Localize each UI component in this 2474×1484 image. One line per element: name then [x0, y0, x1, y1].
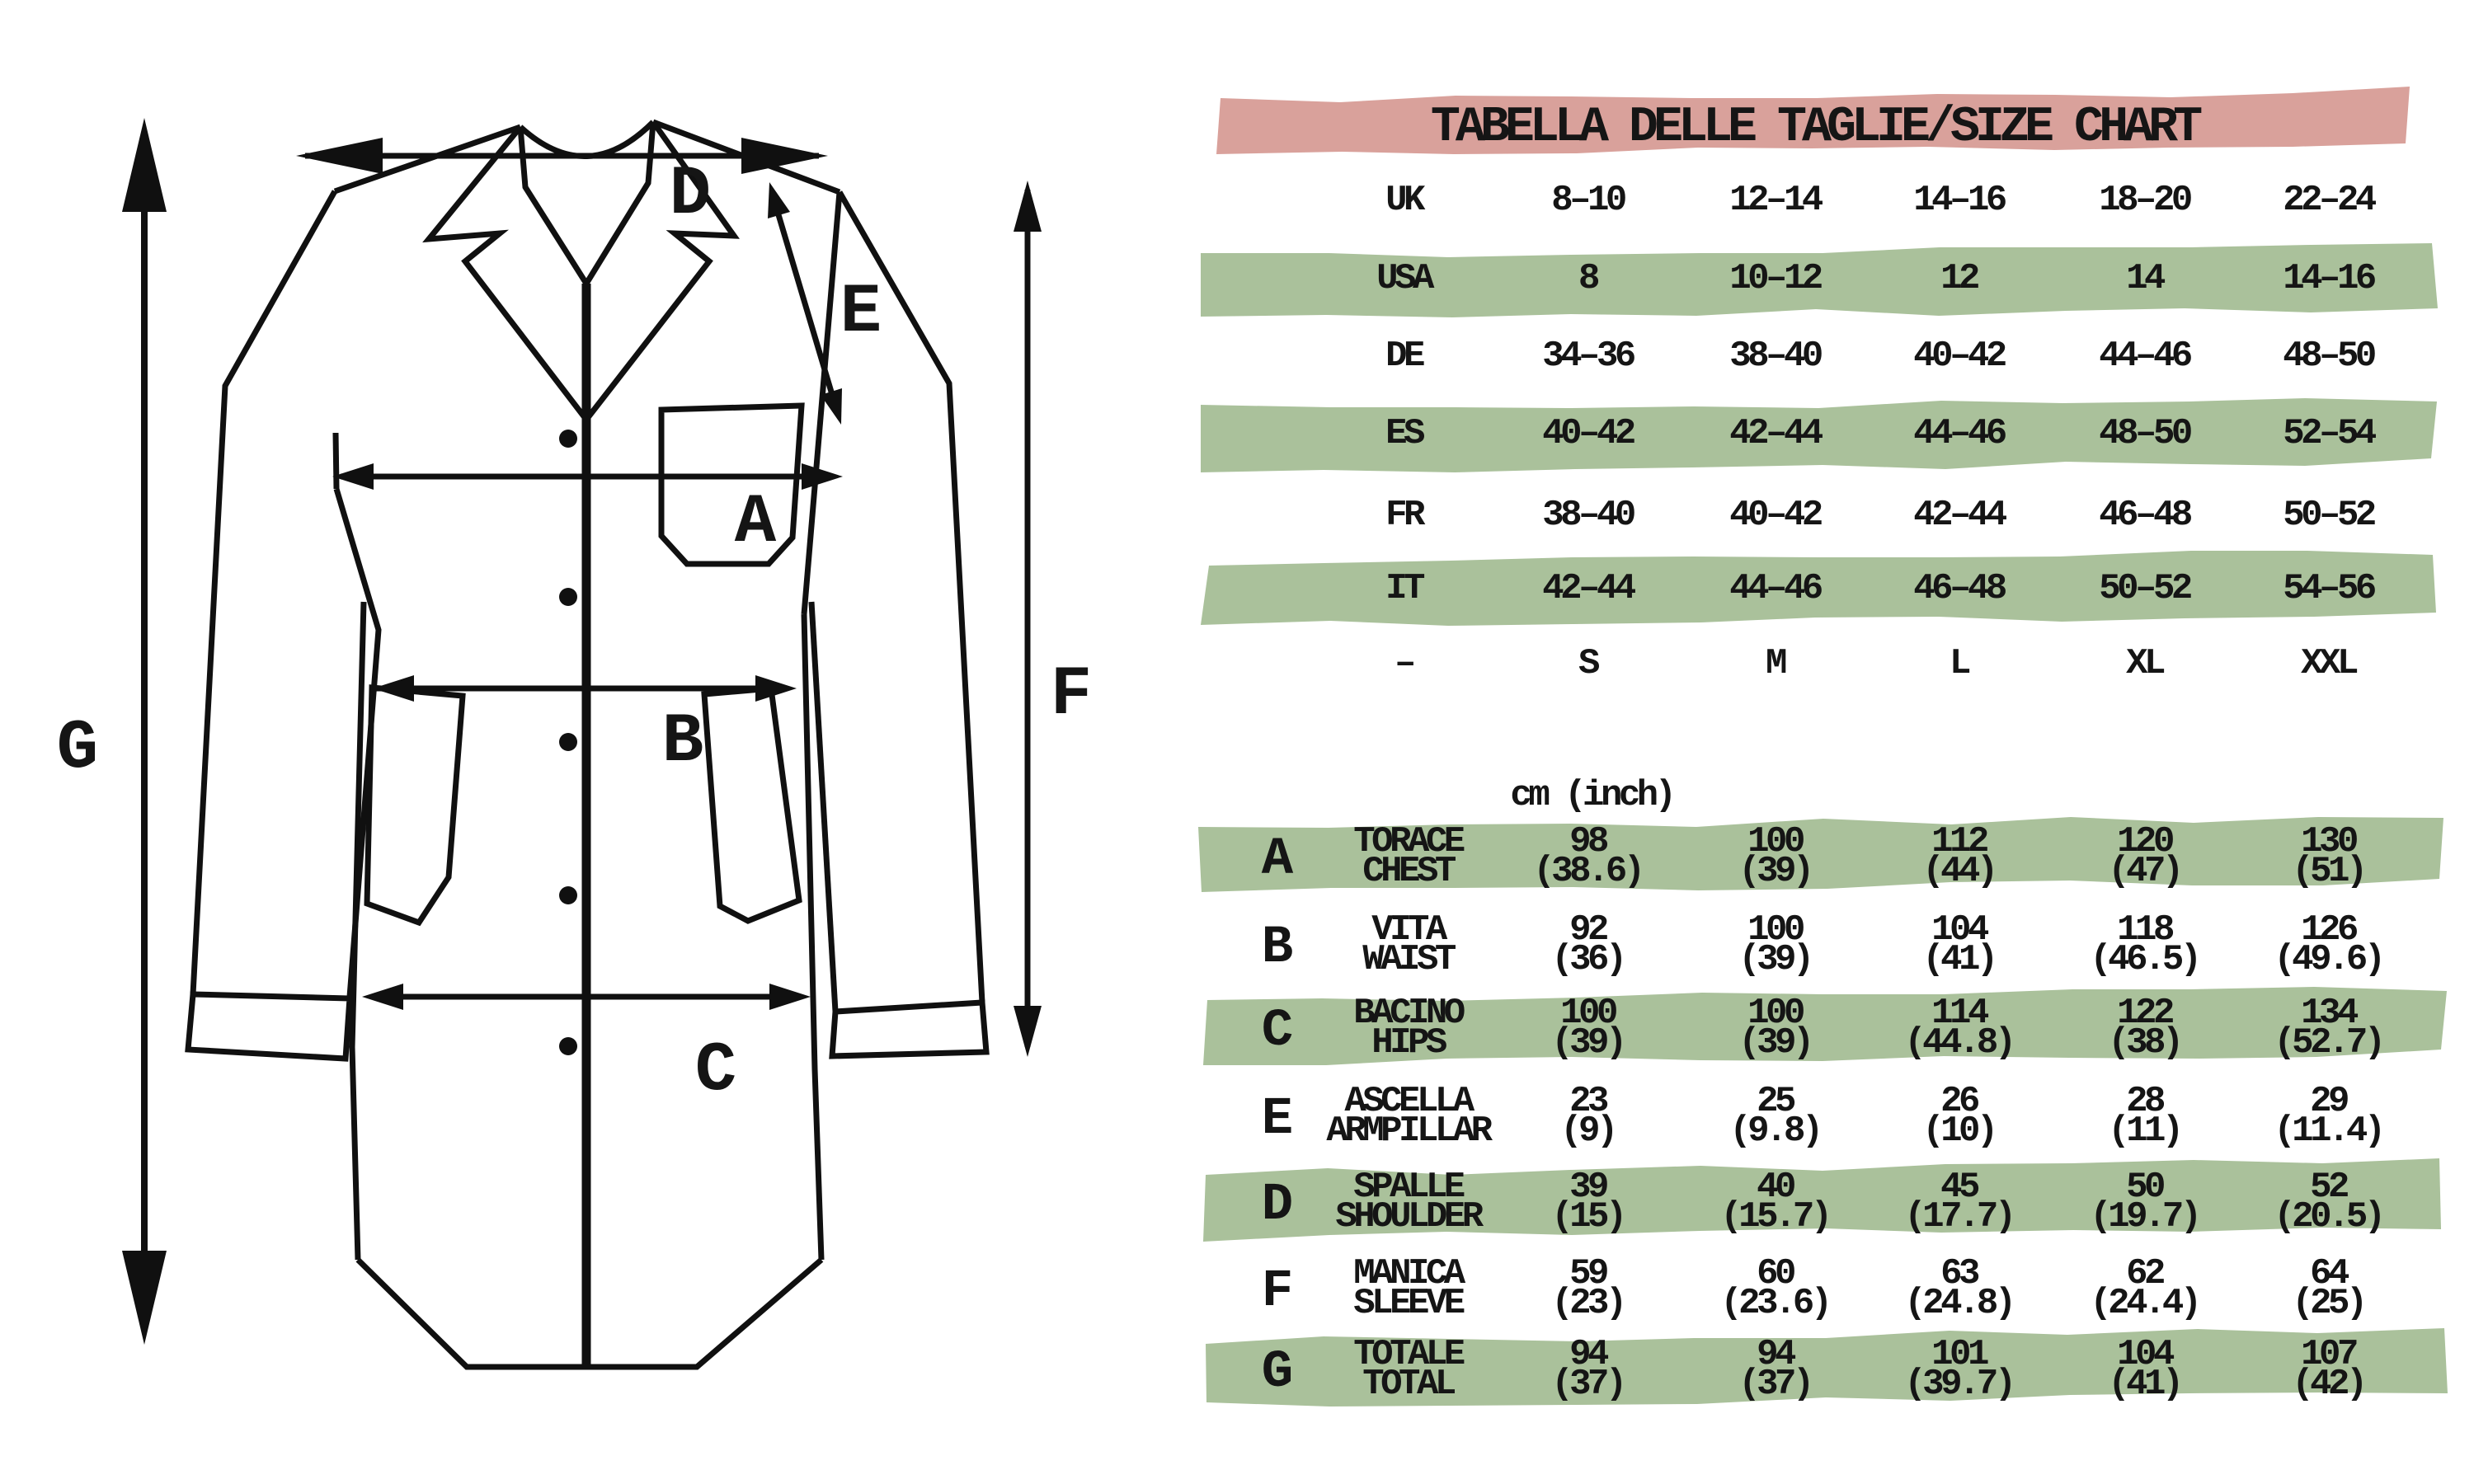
svg-text:ES: ES — [1385, 413, 1425, 454]
svg-text:(44.8): (44.8) — [1904, 1022, 2012, 1064]
svg-text:(49.6): (49.6) — [2274, 939, 2382, 980]
svg-text:34–36: 34–36 — [1542, 336, 1634, 377]
svg-text:D: D — [670, 156, 709, 234]
svg-text:WAIST: WAIST — [1362, 939, 1456, 980]
svg-text:(25): (25) — [2292, 1283, 2364, 1324]
svg-text:(11): (11) — [2108, 1111, 2180, 1152]
svg-text:50–52: 50–52 — [2099, 568, 2191, 609]
svg-text:46–48: 46–48 — [2099, 495, 2192, 536]
svg-text:(24.4): (24.4) — [2090, 1283, 2198, 1324]
svg-text:(11.4): (11.4) — [2274, 1111, 2382, 1152]
svg-text:F: F — [1051, 656, 1089, 735]
svg-text:38–40: 38–40 — [1542, 495, 1634, 536]
svg-text:(20.5): (20.5) — [2274, 1196, 2382, 1237]
svg-text:B: B — [662, 703, 703, 782]
svg-text:42–44: 42–44 — [1913, 495, 2007, 536]
svg-text:42–44: 42–44 — [1729, 413, 1823, 454]
svg-text:L: L — [1950, 643, 1970, 684]
svg-text:44–46: 44–46 — [2099, 336, 2191, 377]
svg-text:46–48: 46–48 — [1913, 568, 2006, 609]
svg-text:C: C — [695, 1032, 736, 1111]
svg-text:12–14: 12–14 — [1729, 180, 1823, 221]
svg-text:(17.7): (17.7) — [1904, 1196, 2012, 1237]
svg-text:42–44: 42–44 — [1542, 568, 1636, 609]
svg-text:(47): (47) — [2108, 851, 2180, 892]
svg-text:(36): (36) — [1551, 939, 1624, 980]
svg-text:48–50: 48–50 — [2099, 413, 2191, 454]
svg-text:(52.7): (52.7) — [2274, 1022, 2382, 1064]
svg-text:cm (inch): cm (inch) — [1510, 775, 1672, 816]
svg-text:44–46: 44–46 — [1913, 413, 2006, 454]
svg-text:50–52: 50–52 — [2283, 495, 2375, 536]
svg-text:IT: IT — [1385, 568, 1425, 609]
svg-text:HIPS: HIPS — [1371, 1022, 1447, 1064]
svg-text:S: S — [1578, 643, 1600, 684]
svg-text:(10): (10) — [1922, 1111, 1995, 1152]
svg-text:40–42: 40–42 — [1729, 495, 1822, 536]
svg-text:(39): (39) — [1738, 1022, 1811, 1064]
svg-text:(37): (37) — [1551, 1364, 1624, 1405]
svg-text:(15.7): (15.7) — [1720, 1196, 1828, 1237]
svg-text:E: E — [840, 274, 879, 352]
svg-text:54–56: 54–56 — [2283, 568, 2375, 609]
svg-text:G: G — [57, 710, 96, 788]
svg-text:(38): (38) — [2108, 1022, 2180, 1064]
svg-text:(37): (37) — [1738, 1364, 1811, 1405]
svg-text:22–24: 22–24 — [2283, 180, 2377, 221]
svg-text:(38.6): (38.6) — [1533, 851, 1641, 892]
svg-text:(15): (15) — [1551, 1196, 1624, 1237]
svg-text:44–46: 44–46 — [1729, 568, 1822, 609]
svg-text:(51): (51) — [2292, 851, 2364, 892]
svg-text:E: E — [1262, 1090, 1291, 1149]
svg-text:(19.7): (19.7) — [2090, 1196, 2198, 1237]
svg-text:(46.5): (46.5) — [2090, 939, 2198, 980]
svg-text:SLEEVE: SLEEVE — [1353, 1283, 1465, 1324]
svg-text:UK: UK — [1385, 180, 1426, 221]
svg-text:(23): (23) — [1551, 1283, 1624, 1324]
svg-text:48–50: 48–50 — [2283, 336, 2375, 377]
svg-text:(9): (9) — [1560, 1111, 1615, 1152]
svg-text:A: A — [735, 484, 777, 562]
svg-text:XXL: XXL — [2301, 643, 2358, 684]
svg-text:52–54: 52–54 — [2283, 413, 2377, 454]
svg-text:CHEST: CHEST — [1362, 851, 1456, 892]
svg-text:XL: XL — [2126, 643, 2165, 684]
svg-text:TOTAL: TOTAL — [1362, 1364, 1456, 1405]
svg-text:(39.7): (39.7) — [1904, 1364, 2012, 1405]
svg-text:(24.8): (24.8) — [1904, 1283, 2012, 1324]
svg-text:–: – — [1395, 643, 1413, 684]
svg-text:12: 12 — [1940, 258, 1978, 299]
svg-text:10–12: 10–12 — [1729, 258, 1822, 299]
svg-text:(39): (39) — [1738, 851, 1811, 892]
svg-text:(44): (44) — [1922, 851, 1995, 892]
svg-text:B: B — [1262, 918, 1293, 978]
svg-text:SHOULDER: SHOULDER — [1335, 1196, 1484, 1237]
svg-text:(42): (42) — [2292, 1364, 2364, 1405]
svg-text:14–16: 14–16 — [1913, 180, 2006, 221]
svg-text:ARMPILLAR: ARMPILLAR — [1326, 1111, 1493, 1152]
svg-text:FR: FR — [1385, 495, 1426, 536]
svg-text:USA: USA — [1376, 258, 1435, 299]
svg-text:8: 8 — [1578, 258, 1599, 299]
svg-text:18–20: 18–20 — [2099, 180, 2191, 221]
svg-text:(41): (41) — [1922, 939, 1995, 980]
svg-text:(41): (41) — [2108, 1364, 2180, 1405]
svg-text:(9.8): (9.8) — [1729, 1111, 1820, 1152]
svg-text:M: M — [1766, 643, 1786, 684]
svg-text:40–42: 40–42 — [1913, 336, 2006, 377]
svg-text:8–10: 8–10 — [1551, 180, 1625, 221]
svg-text:(39): (39) — [1551, 1022, 1624, 1064]
svg-text:14–16: 14–16 — [2283, 258, 2375, 299]
svg-text:(23.6): (23.6) — [1720, 1283, 1828, 1324]
svg-text:40–42: 40–42 — [1542, 413, 1634, 454]
svg-text:DE: DE — [1385, 336, 1424, 377]
svg-text:(39): (39) — [1738, 939, 1811, 980]
svg-text:F: F — [1262, 1262, 1291, 1322]
svg-text:38–40: 38–40 — [1729, 336, 1822, 377]
svg-text:14: 14 — [2126, 258, 2166, 299]
svg-text:TABELLA DELLE TAGLIE/SIZE CHAR: TABELLA DELLE TAGLIE/SIZE CHART — [1431, 100, 2202, 156]
